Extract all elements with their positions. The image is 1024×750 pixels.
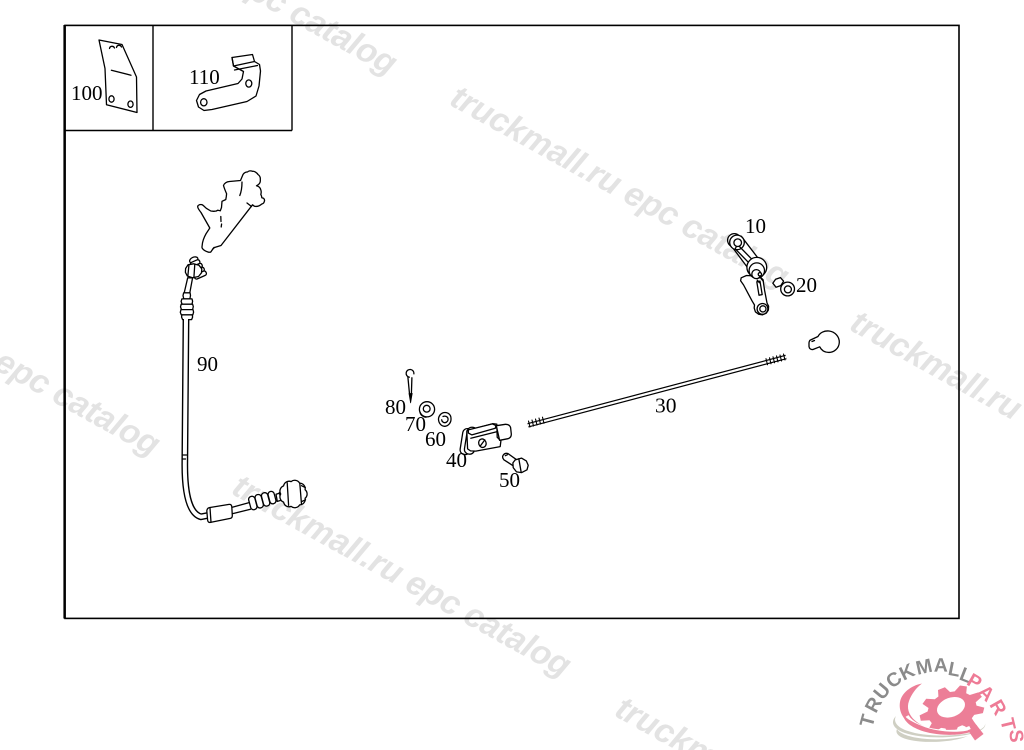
svg-text:80: 80: [385, 395, 406, 419]
svg-text:truckmall.ru epc catalog: truckmall.ru epc catalog: [0, 246, 167, 464]
svg-text:30: 30: [655, 394, 677, 418]
svg-text:A: A: [934, 655, 948, 677]
svg-text:10: 10: [745, 214, 766, 238]
svg-text:S: S: [1004, 729, 1024, 743]
svg-text:70: 70: [405, 412, 426, 436]
svg-text:90: 90: [197, 352, 218, 376]
svg-text:110: 110: [189, 65, 220, 89]
svg-text:100: 100: [71, 81, 103, 105]
svg-text:truckmall.ru epc catalog: truckmall.ru epc catalog: [844, 303, 1024, 521]
svg-text:M: M: [914, 655, 935, 680]
svg-text:truckmall.ru epc catalog: truckmall.ru epc catalog: [444, 78, 796, 296]
svg-text:20: 20: [796, 273, 817, 297]
svg-text:60: 60: [425, 427, 446, 451]
svg-text:50: 50: [499, 468, 520, 492]
svg-text:40: 40: [446, 448, 467, 472]
